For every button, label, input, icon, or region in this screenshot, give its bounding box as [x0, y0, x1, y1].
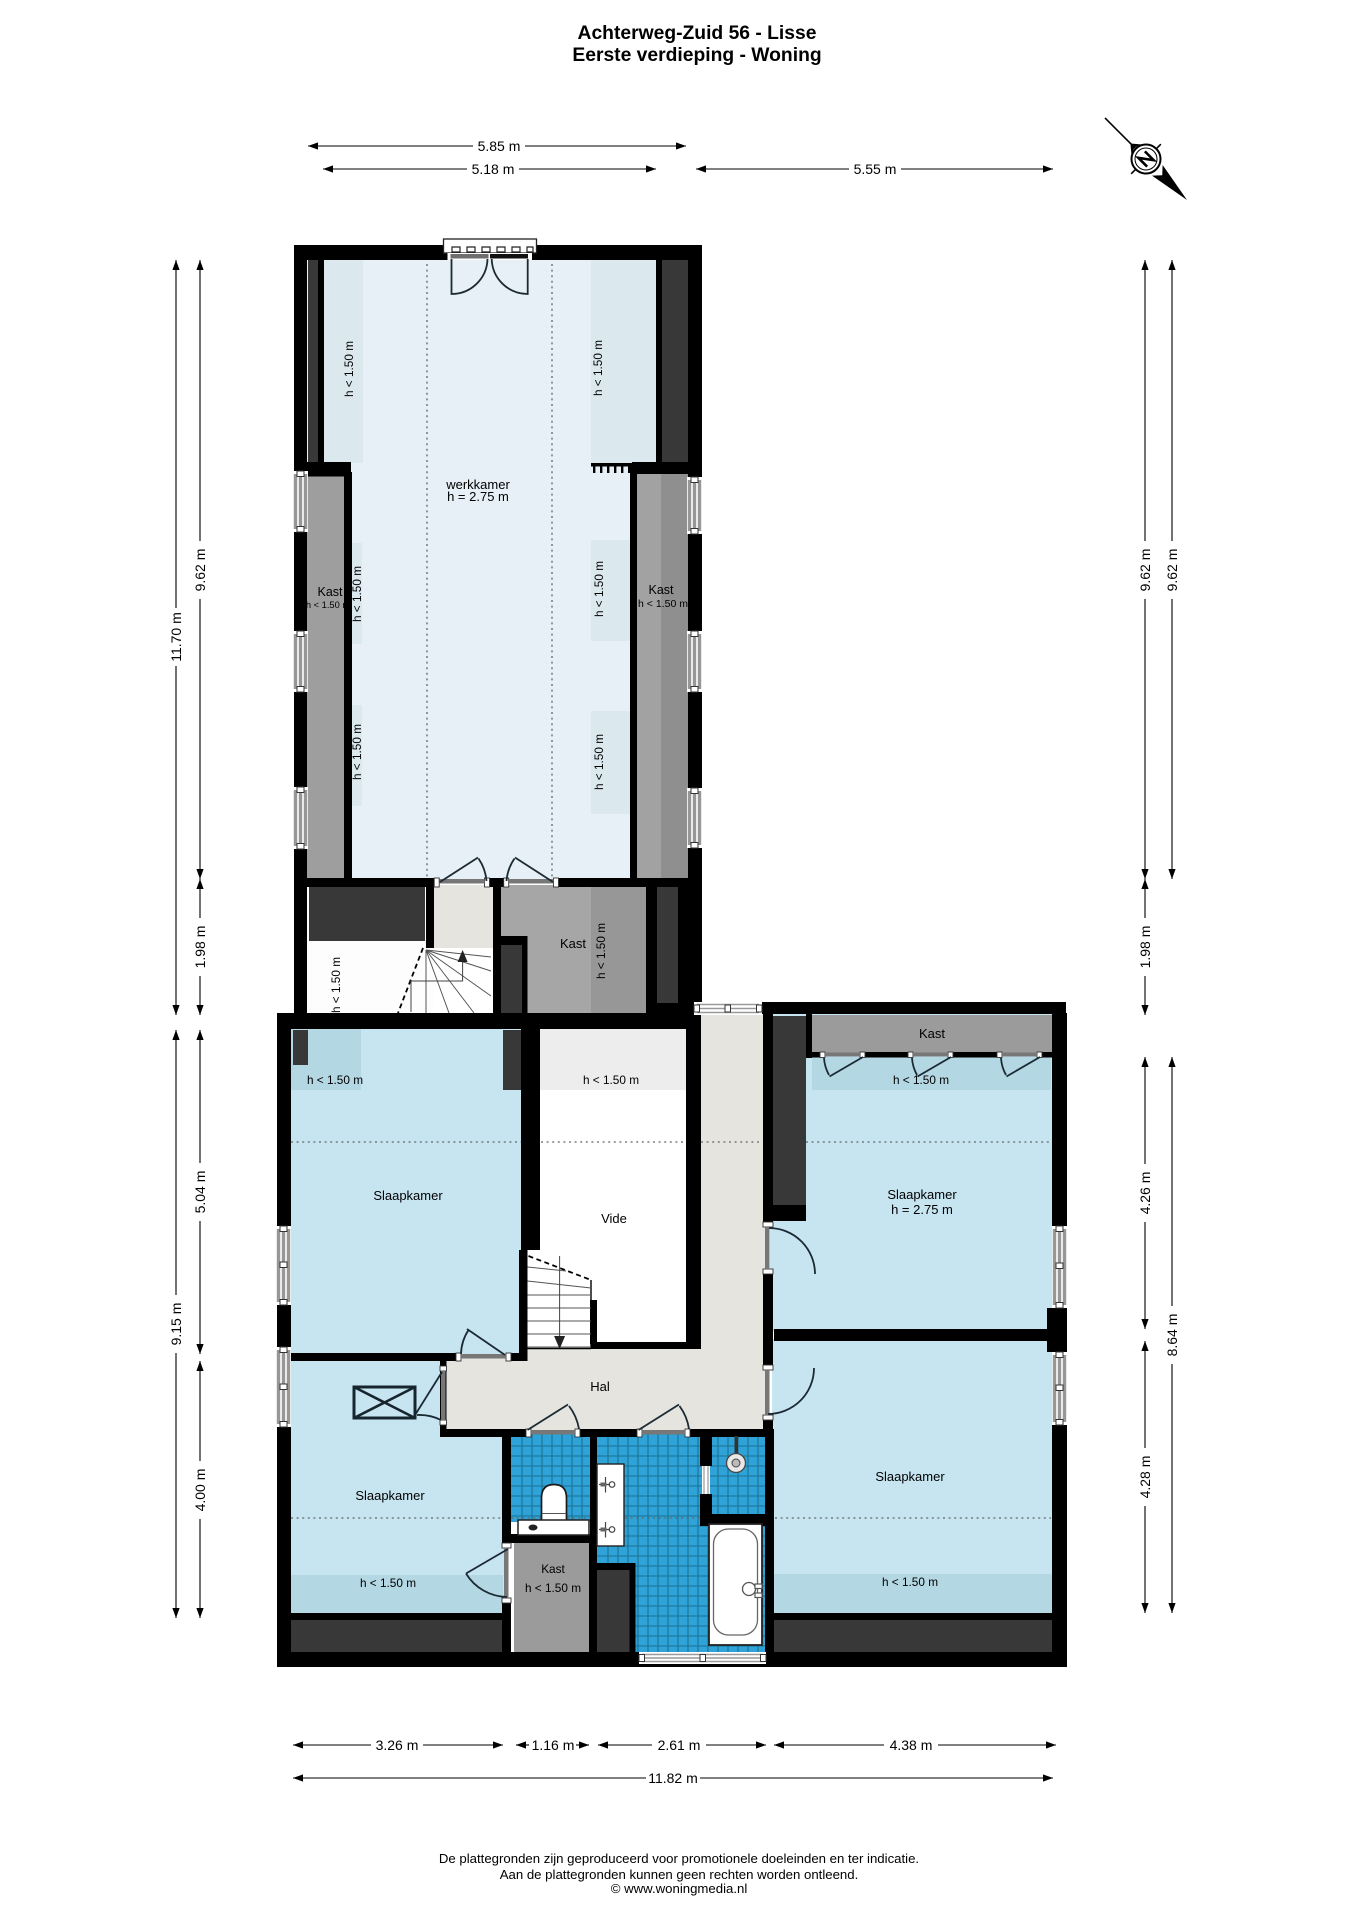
svg-text:8.64 m: 8.64 m	[1164, 1314, 1180, 1357]
svg-text:5.18 m: 5.18 m	[472, 161, 515, 177]
svg-text:Slaapkamer: Slaapkamer	[355, 1488, 425, 1503]
svg-text:Kast: Kast	[919, 1026, 945, 1041]
svg-text:h < 1.50 m: h < 1.50 m	[591, 340, 605, 396]
svg-text:11.82 m: 11.82 m	[648, 1770, 698, 1786]
svg-text:Hal: Hal	[590, 1379, 610, 1394]
svg-text:4.00 m: 4.00 m	[192, 1469, 208, 1512]
svg-text:h < 1.50 m: h < 1.50 m	[350, 566, 364, 622]
svg-text:h = 2.75 m: h = 2.75 m	[447, 489, 509, 504]
svg-text:Kast: Kast	[648, 583, 674, 597]
svg-text:Eerste verdieping - Woning: Eerste verdieping - Woning	[572, 45, 821, 66]
svg-text:Kast: Kast	[317, 585, 343, 599]
svg-text:De plattegronden zijn geproduc: De plattegronden zijn geproduceerd voor …	[439, 1851, 919, 1866]
svg-text:h < 1.50 m: h < 1.50 m	[360, 1576, 416, 1590]
svg-text:h < 1.50 m: h < 1.50 m	[307, 1073, 363, 1087]
svg-text:Vide: Vide	[601, 1211, 627, 1226]
svg-text:1.98 m: 1.98 m	[192, 926, 208, 969]
svg-text:1.16 m: 1.16 m	[532, 1737, 575, 1753]
svg-text:h < 1.50 m: h < 1.50 m	[306, 600, 350, 610]
svg-text:4.38 m: 4.38 m	[890, 1737, 933, 1753]
svg-text:h = 2.75 m: h = 2.75 m	[891, 1202, 953, 1217]
svg-text:Kast: Kast	[560, 936, 586, 951]
svg-text:h < 1.50 m: h < 1.50 m	[583, 1073, 639, 1087]
svg-text:5.85 m: 5.85 m	[478, 138, 521, 154]
svg-text:h < 1.50 m: h < 1.50 m	[882, 1575, 938, 1589]
svg-text:h < 1.50 m: h < 1.50 m	[594, 923, 608, 979]
svg-text:9.15 m: 9.15 m	[168, 1303, 184, 1346]
svg-text:4.26 m: 4.26 m	[1137, 1172, 1153, 1215]
svg-text:9.62 m: 9.62 m	[192, 549, 208, 592]
svg-text:h < 1.50 m: h < 1.50 m	[893, 1073, 949, 1087]
svg-text:5.04 m: 5.04 m	[192, 1171, 208, 1214]
svg-text:h < 1.50 m: h < 1.50 m	[525, 1581, 581, 1595]
svg-text:2.61 m: 2.61 m	[658, 1737, 701, 1753]
svg-text:© www.woningmedia.nl: © www.woningmedia.nl	[611, 1881, 748, 1896]
svg-text:h < 1.50 m: h < 1.50 m	[638, 598, 688, 610]
svg-text:Kast: Kast	[541, 1562, 565, 1576]
svg-text:4.28 m: 4.28 m	[1137, 1456, 1153, 1499]
svg-text:3.26 m: 3.26 m	[376, 1737, 419, 1753]
svg-text:h < 1.50 m: h < 1.50 m	[350, 724, 364, 780]
svg-text:5.55 m: 5.55 m	[854, 161, 897, 177]
svg-text:h < 1.50 m: h < 1.50 m	[592, 561, 606, 617]
svg-text:h < 1.50 m: h < 1.50 m	[592, 734, 606, 790]
svg-text:Slaapkamer: Slaapkamer	[875, 1469, 945, 1484]
svg-text:9.62 m: 9.62 m	[1137, 549, 1153, 592]
svg-text:h < 1.50 m: h < 1.50 m	[342, 341, 356, 397]
svg-text:Achterweg-Zuid 56 - Lisse: Achterweg-Zuid 56 - Lisse	[578, 23, 817, 44]
svg-text:Slaapkamer: Slaapkamer	[887, 1187, 957, 1202]
svg-text:9.62 m: 9.62 m	[1164, 549, 1180, 592]
svg-text:1.98 m: 1.98 m	[1137, 926, 1153, 969]
svg-text:h < 1.50 m: h < 1.50 m	[329, 957, 343, 1013]
svg-text:Slaapkamer: Slaapkamer	[373, 1188, 443, 1203]
svg-text:Aan de plattegronden kunnen ge: Aan de plattegronden kunnen geen rechten…	[500, 1867, 859, 1882]
svg-text:11.70 m: 11.70 m	[168, 612, 184, 662]
